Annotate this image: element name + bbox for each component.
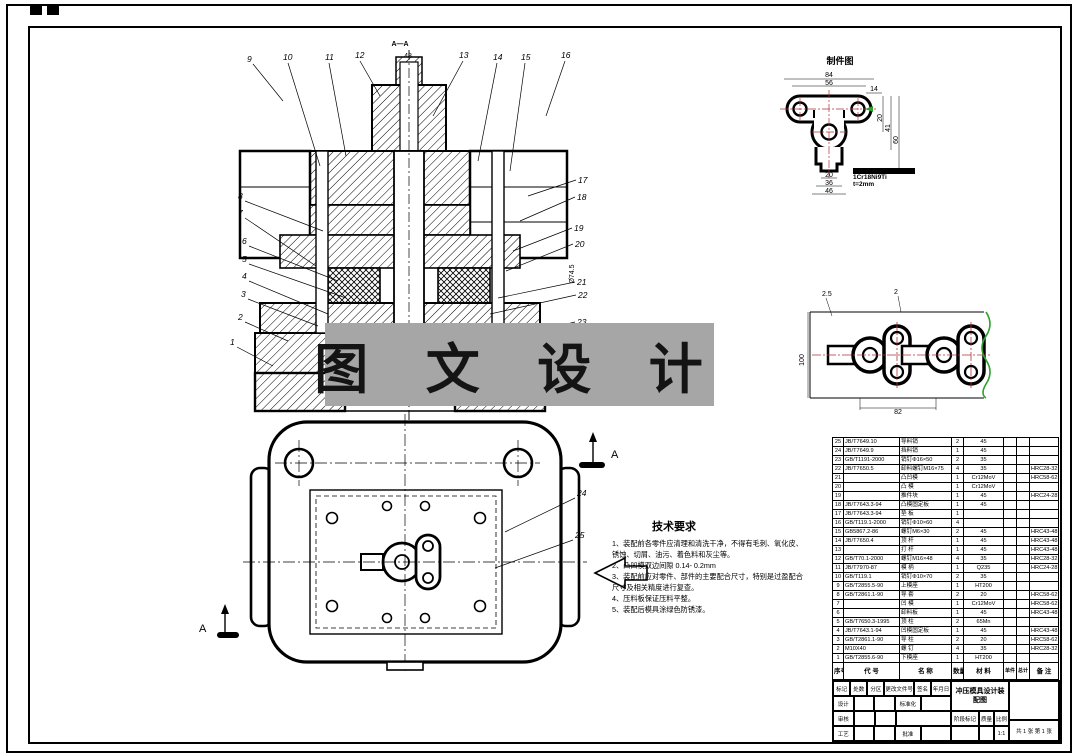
dim-60: 60 [893,136,900,144]
table-row: 5GB/T7650.3-1995顶 柱265Mn [833,618,1059,627]
svg-text:3: 3 [241,289,246,299]
section-arrow-bottom: A [199,604,239,638]
dim-2-5: 2.5 [822,291,832,298]
section-label-a: A [199,623,207,635]
dim-14: 14 [870,86,878,93]
table-row: 6卸料板145HRC43-48 [833,609,1059,618]
tb-design-date [874,696,895,711]
sheet-mark [30,6,42,15]
tb-mass-label: 质量 [979,711,994,726]
table-row: 21凸凹模1Cr12MoVHRC58-62 [833,474,1059,483]
svg-text:8: 8 [238,191,243,201]
tech-req-item: 2、凸凹模双边间隙 0.14- 0.2mm [612,560,808,571]
section-label: A—A [391,41,408,48]
table-row: 22JB/T7650.5卸料螺钉M16×75435HRC28-32 [833,465,1059,474]
table-row: 7凹 模1Cr12MoVHRC58-62 [833,600,1059,609]
tb-drawing-no [1009,681,1059,720]
table-row: 2M10X40螺 钉435HRC28-32 [833,645,1059,654]
tb-scale-value: 1:1 [994,726,1009,741]
tech-req-item: 3、装配前应对零件、部件的主要配合尺寸，特别是过盈配合尺寸及相关精度进行复查。 [612,571,808,593]
table-row: 15GB5867.2-86螺钉M6×30245HRC43-48 [833,528,1059,537]
workpiece-dims-right [883,96,899,174]
dim-41: 41 [885,124,892,132]
section-arrow-top: A [579,432,619,468]
tb-sheet-info: 共 1 张 第 1 张 [1009,720,1059,741]
svg-text:2: 2 [237,312,243,322]
tb-change-date: 年月日 [931,681,951,696]
section-label-a: A [611,449,619,461]
svg-text:11: 11 [325,52,334,62]
tb-scale-label: 比例 [994,711,1009,726]
svg-text:22: 22 [577,290,588,300]
table-row: 17JB/T7643.3-94垫 板1 [833,510,1059,519]
tb-process-date [874,726,895,741]
workpiece-view-label: 制件图 [826,55,853,66]
tech-requirements: 技术要求 1、装配前各零件应清理和清洗干净，不得有毛刺、氧化皮、锈蚀、切屑、油污… [612,518,808,615]
col-code: 代 号 [844,663,900,680]
drawing-sheet: A—A 48 [0,0,1077,756]
table-row: 23GB/T1191-2000销钉Φ16×50235 [833,456,1059,465]
tb-standard-label: 标准化 [895,696,922,711]
col-total: 总计 [1017,663,1030,680]
strip-layout-view: 2.5 2 100 82 [798,286,998,416]
title-block-middle: 冲压模具设计装配图 阶段标记 质量 比例 1:1 [951,681,1009,741]
svg-text:7: 7 [238,208,243,218]
svg-text:24: 24 [576,488,587,498]
svg-text:1: 1 [230,337,235,347]
svg-text:20: 20 [574,239,585,249]
tb-design-sign [854,696,875,711]
tech-req-item: 5、装配后模具涂绿色防锈漆。 [612,604,808,615]
parts-rows: 25JB/T7649.10导料销24524JB/T7649.9挡料销14523G… [833,438,1059,663]
svg-text:25: 25 [574,530,585,540]
dim-2: 2 [894,289,898,296]
tb-blank [896,711,951,726]
tb-process-sign [854,726,875,741]
svg-text:4: 4 [242,271,247,281]
title-block-right: 共 1 张 第 1 张 [1009,681,1059,741]
tb-mass-value [979,726,994,741]
tb-stage-value [951,726,979,741]
svg-text:16: 16 [561,50,571,60]
table-row: 10GB/T119.1销钉Φ10×70235 [833,573,1059,582]
tb-check-label: 审核 [833,711,854,726]
svg-text:18: 18 [577,192,587,202]
svg-text:5: 5 [242,254,247,264]
svg-text:19: 19 [574,223,584,233]
svg-text:6: 6 [242,236,247,246]
dim-36: 36 [825,180,833,187]
tb-check-sign [854,711,875,726]
table-row: 11JB/T7970-87模 柄1Q235HRC24-28 [833,564,1059,573]
table-row: 24JB/T7649.9挡料销145 [833,447,1059,456]
table-row: 16GB/T119.1-2000销钉Φ10×604 [833,519,1059,528]
svg-text:12: 12 [355,50,365,60]
tb-change-count: 处数 [850,681,867,696]
tb-change-mark: 标记 [833,681,850,696]
dim-46: 46 [825,188,833,195]
table-row: 13打 杆145HRC43-48 [833,546,1059,555]
col-per: 单件 [1004,663,1017,680]
tb-approve-label: 批准 [895,726,922,741]
table-row: 19推件块145HRC24-28 [833,492,1059,501]
parts-header-row: 序号 代 号 名 称 数量 材 料 单件 总计 备 注 [833,663,1059,680]
col-no: 序号 [833,663,844,680]
parts-list-table: 25JB/T7649.10导料销24524JB/T7649.9挡料销14523G… [832,437,1059,680]
col-qty: 数量 [952,663,964,680]
drawing-title: 冲压模具设计装配图 [951,681,1009,711]
col-material: 材 料 [964,663,1004,680]
dim-20r: 20 [877,114,884,122]
svg-text:17: 17 [578,175,588,185]
dim-20b: 20 [825,172,833,179]
title-block-left: 标记 处数 分区 更改文件号 签名 年月日 设计 标准化 审核 [833,681,951,741]
workpiece-note: 1Cr18Ni9Ti t=2mm [853,168,923,188]
col-name: 名 称 [900,663,952,680]
tb-standard-sign [921,696,951,711]
tech-req-item: 1、装配前各零件应清理和清洗干净，不得有毛刺、氧化皮、锈蚀、切屑、油污、着色料和… [612,538,808,560]
watermark: 图 文 设 计 [325,323,714,406]
svg-text:13: 13 [459,50,469,60]
svg-text:10: 10 [283,52,293,62]
tb-change-doc: 更改文件号 [884,681,914,696]
col-note: 备 注 [1030,663,1059,680]
table-row: 12GB/T70.1-2000螺钉M16×48435HRC28-32 [833,555,1059,564]
dim-100: 100 [799,354,806,366]
table-row: 14JB/T7650.4顶 杆145HRC43-48 [833,537,1059,546]
tb-design-label: 设计 [833,696,854,711]
svg-text:21: 21 [576,277,587,287]
table-row: 4JB/T7643.1-94凹模固定板145HRC43-48 [833,627,1059,636]
sheet-mark [47,6,59,15]
table-row: 3GB/T2861.1-90导 柱220HRC58-62 [833,636,1059,645]
dim-82: 82 [894,409,902,416]
tb-approve-sign [921,726,951,741]
table-row: 8GB/T2861.1-90导 套220HRC58-62 [833,591,1059,600]
svg-text:14: 14 [493,52,503,62]
workpiece-dims-top [784,79,882,93]
tb-check-date [875,711,896,726]
table-row: 1GB/T2855.6-90下模座1HT200 [833,654,1059,663]
table-row: 9GB/T2855.5-90上模座1HT200 [833,582,1059,591]
svg-text:15: 15 [521,52,531,62]
tb-change-sign: 签名 [914,681,931,696]
dim-right-dia: Ø74.5 [569,264,576,283]
note-thickness: t=2mm [853,181,923,188]
tech-req-item: 4、压料板保证压料平整。 [612,593,808,604]
table-row: 25JB/T7649.10导料销245 [833,438,1059,447]
tb-change-zone: 分区 [867,681,884,696]
bottom-notch [387,662,423,670]
svg-text:9: 9 [247,54,252,64]
dim-84: 84 [825,72,833,79]
tb-process-label: 工艺 [833,726,854,741]
title-block: 标记 处数 分区 更改文件号 签名 年月日 设计 标准化 审核 [832,680,1060,742]
table-row: 18JB/T7643.3-94凸模固定板145 [833,501,1059,510]
note-material: 1Cr18Ni9Ti [853,174,923,181]
plan-view: A A 24 25 [195,410,660,690]
table-row: 20凸 模1Cr12MoV [833,483,1059,492]
tb-stage-label: 阶段标记 [951,711,979,726]
tech-req-title: 技术要求 [652,518,808,534]
dim-56: 56 [825,80,833,87]
